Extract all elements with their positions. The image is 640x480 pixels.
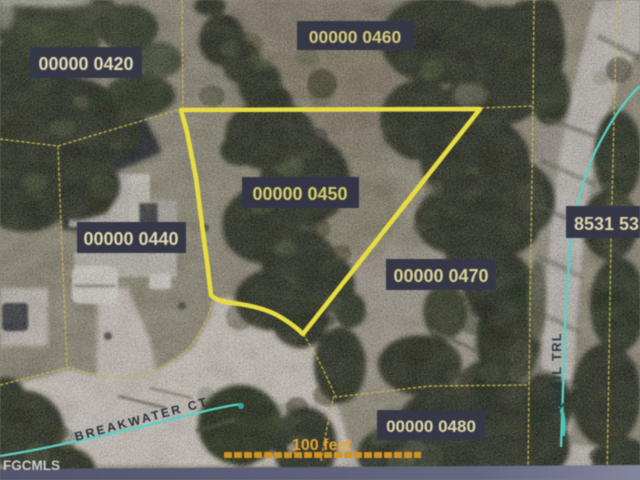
svg-text:00000 0440: 00000 0440 [83,229,178,249]
svg-text:00000 0470: 00000 0470 [393,266,488,286]
svg-text:QUAIL TRL: QUAIL TRL [549,332,564,412]
svg-text:00000 0420: 00000 0420 [38,54,133,74]
svg-text:8531 53: 8531 53 [574,214,639,234]
svg-text:00000 0460: 00000 0460 [309,27,402,47]
svg-text:00000 0450: 00000 0450 [252,184,347,204]
svg-text:100 feet: 100 feet [292,437,352,454]
svg-text:00000 0480: 00000 0480 [386,417,476,436]
svg-text:FGCMLS: FGCMLS [3,458,60,473]
